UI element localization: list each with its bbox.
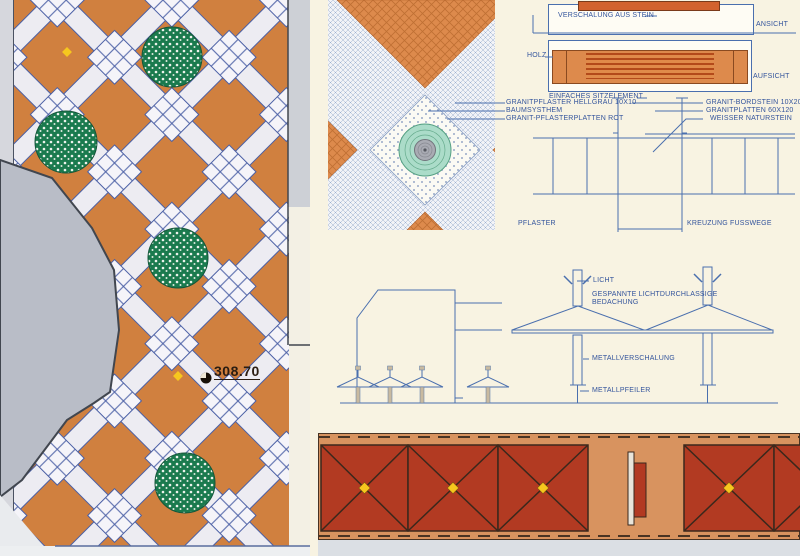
material-label-naturstein: WEISSER NATURSTEIN xyxy=(710,115,792,123)
licht-label: LICHT xyxy=(593,277,614,285)
aufsicht-label: AUFSICHT xyxy=(753,73,790,81)
pflaster-label: PFLASTER xyxy=(518,220,556,228)
crossing-caption: KREUZUNG FUSSWEGE xyxy=(687,220,772,228)
material-label-granitpflaster: GRANITPFLASTER HELLGRAU 10X10 xyxy=(506,99,636,107)
material-label-bordstein: GRANIT-BORDSTEIN 10X20 xyxy=(706,99,800,107)
bedachung-label-line2: BEDACHUNG xyxy=(592,299,639,307)
drawing-sheet: 308.70 VERSCHALUNG AUS STEIN ANSICHT HOL… xyxy=(0,0,800,556)
ansicht-label: ANSICHT xyxy=(756,21,788,29)
bedachung-label-line1: GESPANNTE LICHTDURCHLASSIGE xyxy=(592,291,717,299)
holz-label: HOLZ xyxy=(527,52,546,60)
metallverschalung-label: METALLVERSCHALUNG xyxy=(592,355,675,363)
metallpfeiler-label: METALLPFEILER xyxy=(592,387,651,395)
umbrella-posts xyxy=(356,366,491,403)
material-label-pflasterplatten: GRANIT-PFLASTERPLATTEN ROT xyxy=(506,115,623,123)
technical-linework xyxy=(0,0,800,556)
material-label-granitplatten: GRANITPLATTEN 60X120 xyxy=(706,107,794,115)
verschalung-label: VERSCHALUNG AUS STEIN xyxy=(558,12,654,20)
material-label-baumsysthem: BAUMSYSTHEM xyxy=(506,107,562,115)
spot-elevation-label: 308.70 xyxy=(214,363,260,380)
